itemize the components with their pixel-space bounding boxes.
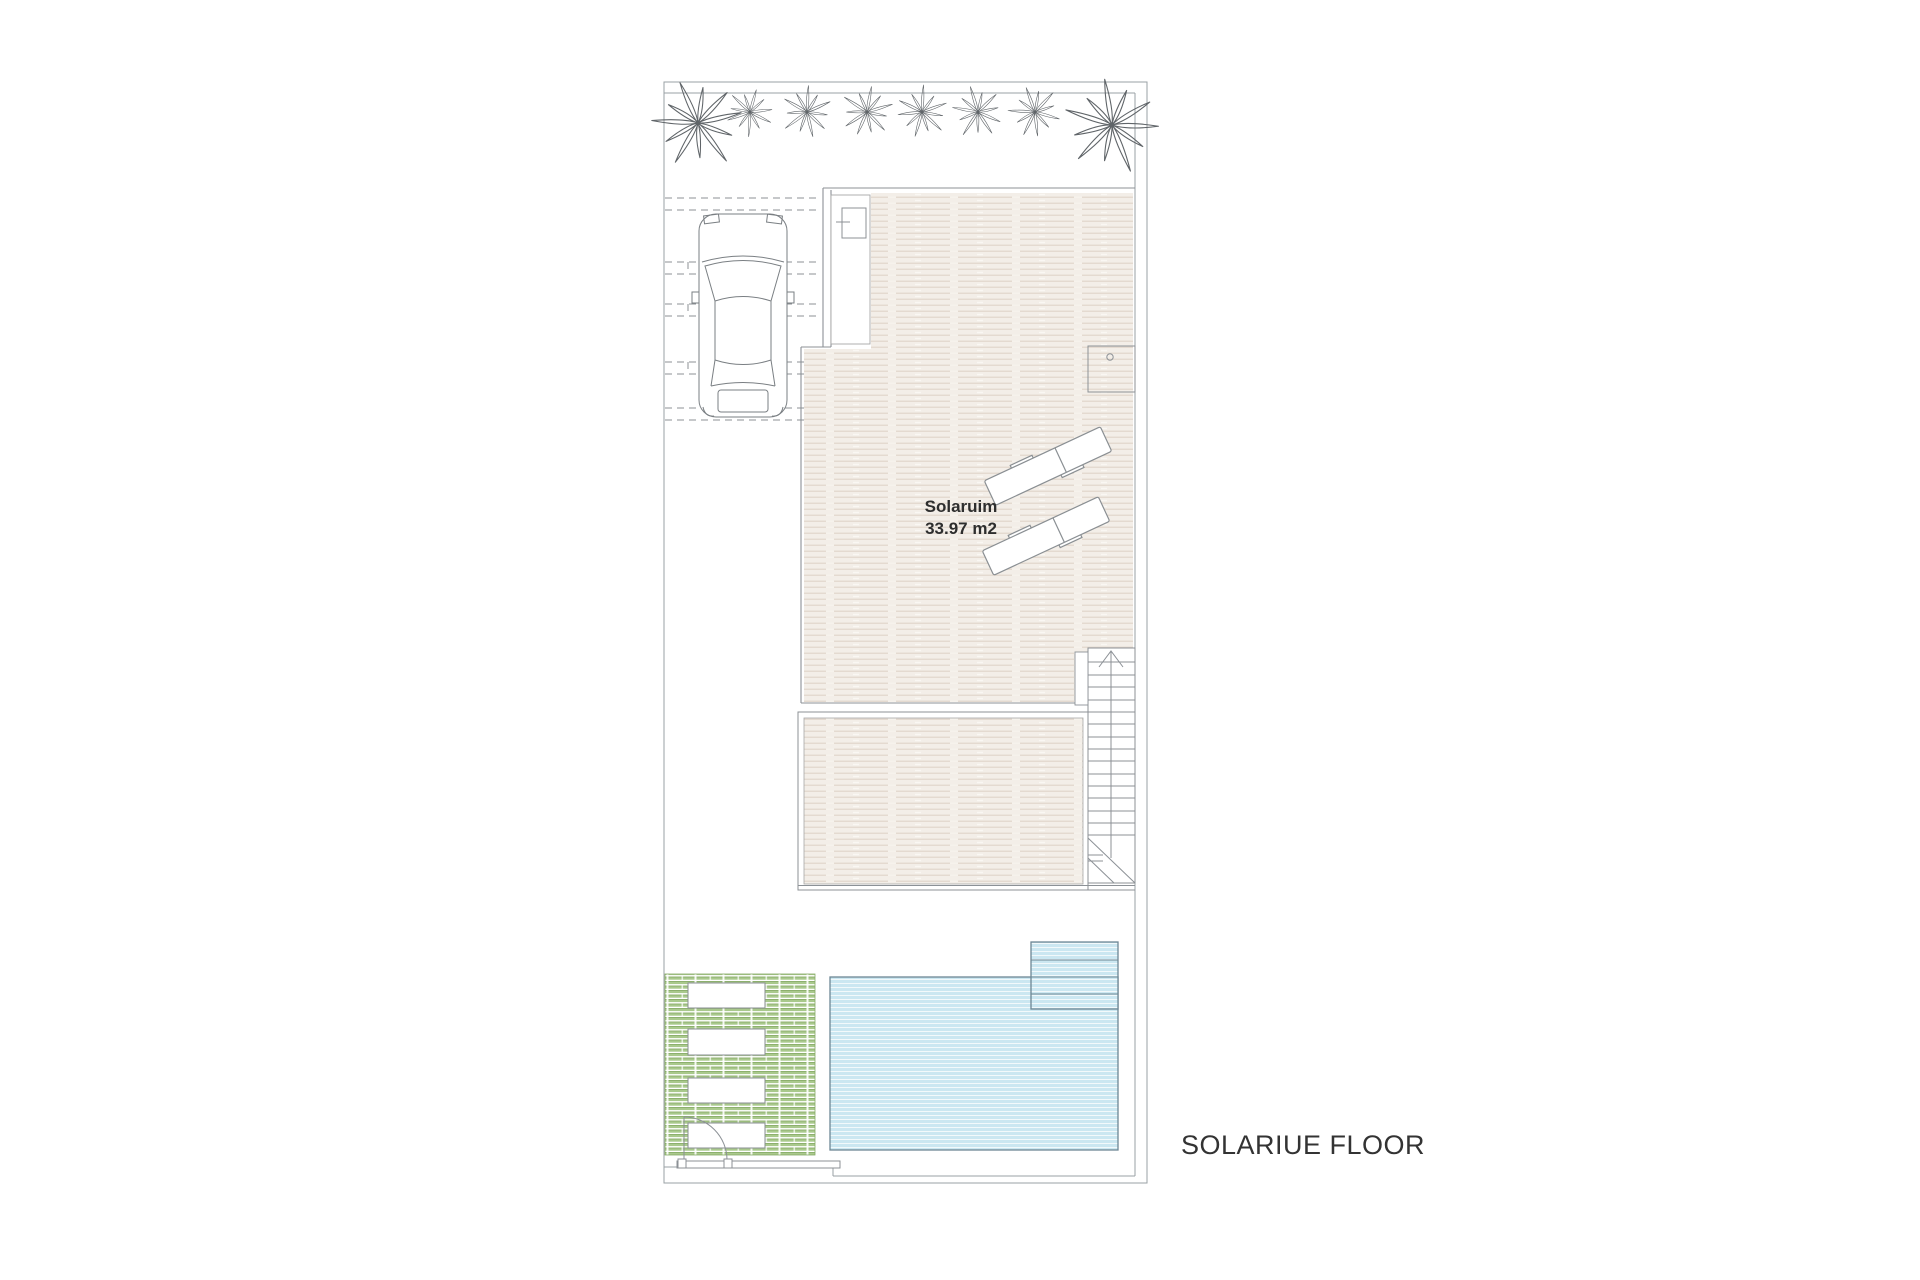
planter-icon bbox=[688, 1029, 765, 1055]
pool-steps-icon bbox=[1031, 942, 1118, 1009]
palm-tree-icon bbox=[836, 81, 900, 143]
palm-tree-icon bbox=[652, 81, 742, 163]
palm-tree-icon bbox=[887, 78, 957, 147]
palm-tree-icon bbox=[947, 79, 1009, 143]
palm-tree-icon bbox=[1001, 77, 1070, 147]
planter-icon bbox=[688, 1123, 765, 1148]
car-icon bbox=[692, 214, 794, 417]
pool-icon bbox=[830, 942, 1118, 1150]
solarium-area-value: 33.97 m2 bbox=[900, 518, 1022, 540]
bottom-walkway bbox=[677, 1159, 840, 1168]
garden-deck bbox=[665, 974, 815, 1155]
floor-plan-page: Solaruim 33.97 m2 SOLARIUE FLOOR bbox=[0, 0, 1920, 1280]
roof-access-door bbox=[842, 208, 866, 238]
stair-landing bbox=[831, 195, 870, 344]
palm-tree-icon bbox=[1054, 70, 1167, 177]
floor-plan-drawing bbox=[0, 0, 1920, 1280]
planter-icon bbox=[688, 983, 765, 1008]
palm-tree-row bbox=[652, 70, 1168, 177]
floor-title: SOLARIUE FLOOR bbox=[1181, 1130, 1425, 1161]
solarium-room-name: Solaruim bbox=[900, 496, 1022, 518]
lower-deck-section bbox=[798, 712, 1135, 890]
planter-icon bbox=[688, 1078, 765, 1103]
solarium-label: Solaruim 33.97 m2 bbox=[900, 496, 1022, 540]
